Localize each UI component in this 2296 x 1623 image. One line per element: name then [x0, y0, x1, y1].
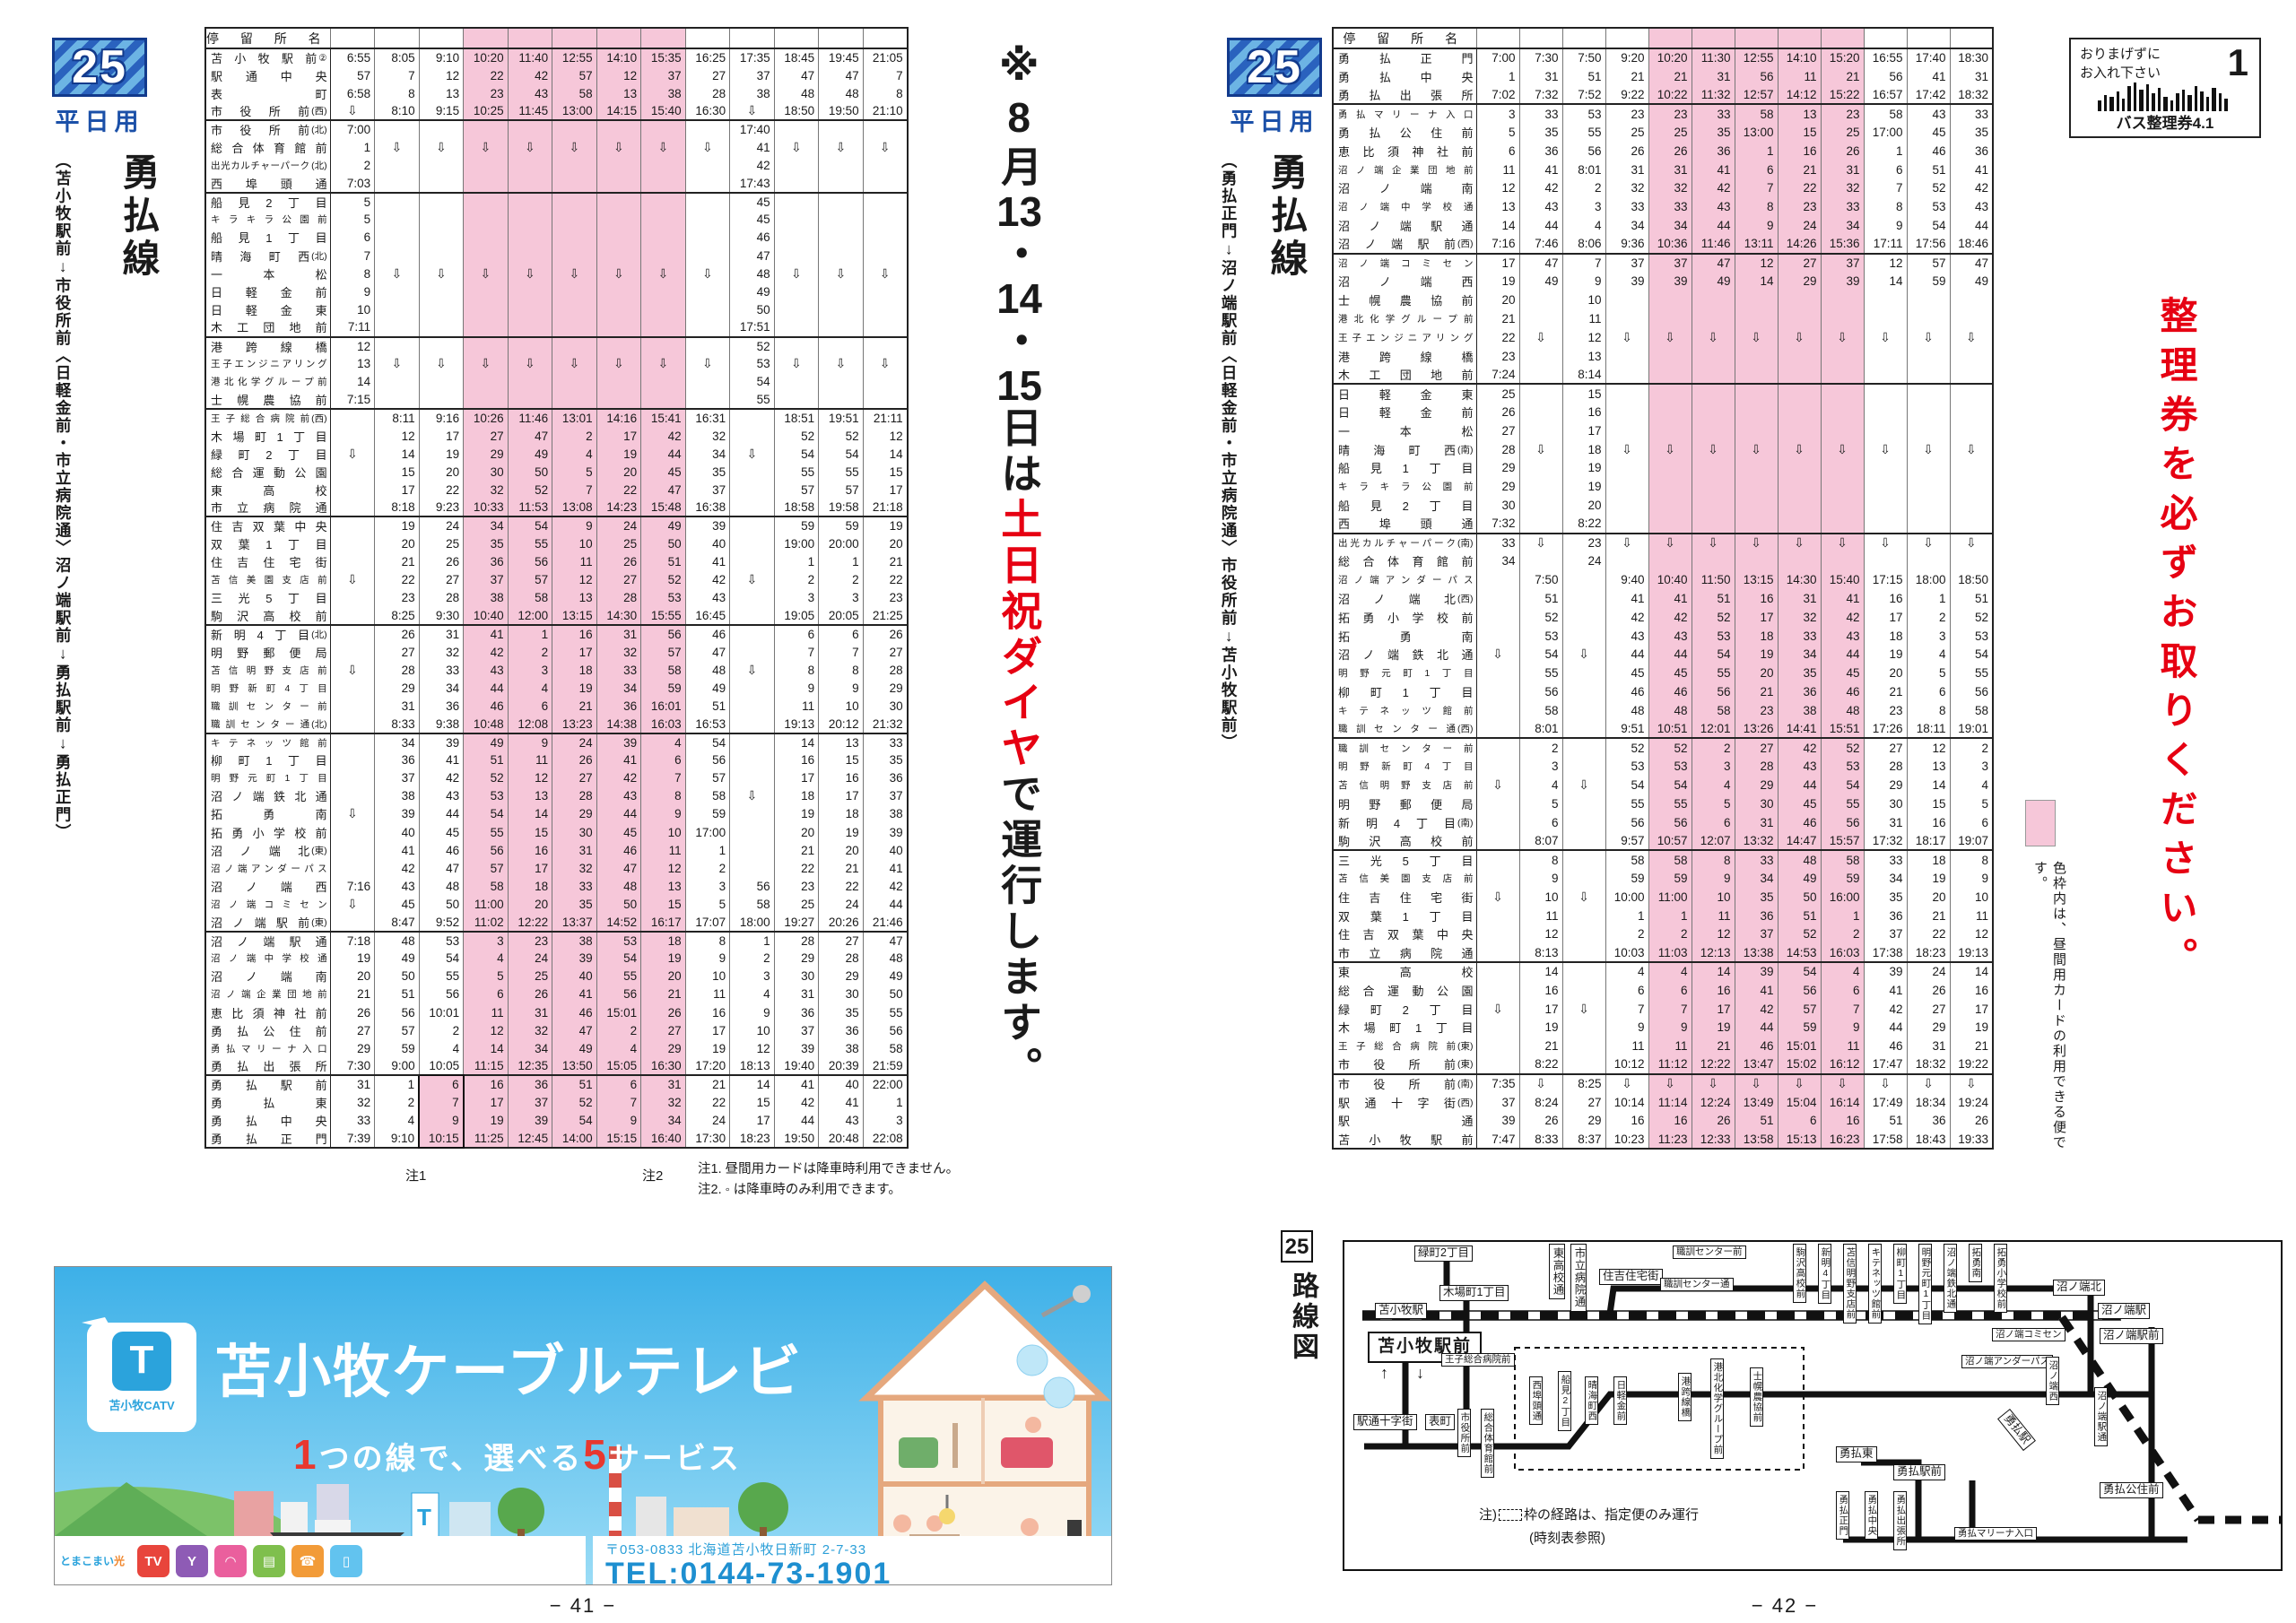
time-cell [730, 516, 775, 534]
time-cell [1476, 682, 1519, 701]
time-cell: 29 [1476, 459, 1519, 478]
time-cell: 8 [375, 84, 420, 102]
time-cell: 19 [1562, 459, 1605, 478]
time-cell: 15 [1778, 123, 1821, 142]
time-cell: ⇩ [1950, 440, 1993, 459]
time-cell: 52 [1648, 738, 1692, 757]
time-cell: 20 [1864, 664, 1907, 682]
time-cell: 36 [1519, 142, 1562, 161]
stop-row: 苫信明野支店前⇩283343318335848⇩8828 [205, 661, 908, 679]
time-cell: 37 [464, 571, 509, 589]
time-cell: 13:38 [1735, 943, 1778, 962]
pass-through-arrow-icon: ⇩ [1880, 442, 1891, 456]
time-cell [1950, 384, 1993, 403]
time-cell: 52 [774, 427, 819, 445]
time-cell: 54 [596, 950, 641, 968]
time-cell [552, 175, 597, 193]
time-cell: 26 [375, 625, 420, 643]
time-cell: 56 [1562, 142, 1605, 161]
time-cell: 54 [774, 445, 819, 463]
time-cell: 34 [685, 445, 730, 463]
time-cell: 50 [1778, 888, 1821, 907]
time-cell: 33 [1950, 104, 1993, 123]
time-cell: 42 [1605, 608, 1648, 627]
stop-row: 総合運動公園152030505204535555515 [205, 463, 908, 481]
time-cell: 55 [1562, 123, 1605, 142]
time-cell: 14 [375, 445, 420, 463]
time-cell: 32 [508, 1021, 552, 1039]
time-cell [685, 175, 730, 193]
time-cell: 55 [1605, 794, 1648, 813]
pass-through-arrow-icon: ⇩ [347, 806, 358, 820]
time-cell [1692, 459, 1735, 478]
time-cell [596, 337, 641, 355]
stop-name-cell: 総合体育館前 [205, 138, 330, 156]
time-cell: 36 [1864, 907, 1907, 925]
time-cell [419, 211, 464, 229]
time-cell: 6 [1692, 813, 1735, 832]
time-cell [1950, 347, 1993, 366]
time-cell: ⇩ [730, 787, 775, 805]
time-cell: 10 [1562, 291, 1605, 309]
time-cell [774, 282, 819, 300]
time-cell: 51 [1735, 1111, 1778, 1130]
time-cell [330, 679, 375, 697]
time-cell: 3 [464, 932, 509, 950]
time-cell: 9 [1648, 1018, 1692, 1037]
time-cell: ⇩ [464, 265, 509, 282]
time-cell: 54 [1519, 646, 1562, 664]
time-cell: 35 [1519, 123, 1562, 142]
time-cell: ⇩ [1476, 646, 1519, 664]
stop-name-cell: 沼ノ端北(東) [205, 841, 330, 859]
time-cell: 2 [1907, 608, 1950, 627]
stop-row: 沼ノ端駅通144443434449243495444 [1333, 216, 1993, 235]
time-cell: 15:02 [1778, 1055, 1821, 1074]
time-cell: 38 [552, 932, 597, 950]
time-cell [863, 337, 908, 355]
stop-row: 新明4丁目(南)65656631465631166 [1333, 813, 1993, 832]
time-cell: 54 [464, 805, 509, 823]
time-cell: 30 [819, 985, 864, 1003]
time-cell: 33 [330, 1112, 375, 1130]
time-cell: 12:00 [508, 607, 552, 625]
time-cell: 16 [552, 625, 597, 643]
dashed-frame-sample [1499, 1509, 1522, 1521]
time-cell [774, 300, 819, 318]
map-stop-label: 沼ノ端鉄北通 [1944, 1244, 1957, 1313]
map-stop-label: 明野元町1丁目 [1918, 1244, 1932, 1324]
time-cell [1519, 459, 1562, 478]
time-cell: 23 [863, 589, 908, 607]
time-cell: 16 [1950, 981, 1993, 1000]
time-cell: ⇩ [1821, 1074, 1864, 1093]
map-stop-label: 苫信明野支店前 [1843, 1244, 1857, 1324]
pass-through-arrow-icon: ⇩ [347, 897, 358, 911]
time-cell [1735, 291, 1778, 309]
time-cell [1692, 515, 1735, 534]
time-cell: 12 [596, 66, 641, 84]
time-cell: ⇩ [1907, 534, 1950, 552]
time-cell: ⇩ [730, 571, 775, 589]
stop-name-cell: 総合運動公園 [205, 463, 330, 481]
time-cell: 43 [1950, 197, 1993, 216]
stop-name-cell: 一本松 [1333, 421, 1476, 440]
time-cell: 40 [375, 823, 420, 841]
time-cell: 9 [1605, 1018, 1648, 1037]
time-cell [641, 300, 686, 318]
time-cell [375, 282, 420, 300]
time-cell: 25 [419, 535, 464, 553]
time-cell: 21:46 [863, 914, 908, 932]
pass-through-arrow-icon: ⇩ [658, 356, 669, 370]
time-cell: ⇩ [1864, 534, 1907, 552]
time-cell [1950, 309, 1993, 328]
map-note: 注)枠の経路は、指定便のみ運行 (時刻表参照) [1479, 1504, 1699, 1549]
time-cell: 21 [774, 841, 819, 859]
time-cell: 17 [774, 769, 819, 787]
time-cell: 48 [419, 877, 464, 895]
trip-column-header [375, 28, 420, 48]
stop-row: 沼ノ端駅前(西)7:167:468:069:3610:3611:4613:111… [1333, 235, 1993, 254]
time-cell: 50 [641, 535, 686, 553]
time-cell: 48 [1821, 701, 1864, 720]
pass-through-arrow-icon: ⇩ [1665, 330, 1675, 344]
time-cell: 26 [552, 751, 597, 769]
pass-through-arrow-icon: ⇩ [1880, 535, 1891, 550]
time-cell: ⇩ [863, 138, 908, 156]
time-cell: 42 [730, 157, 775, 175]
time-cell: 19:33 [1950, 1130, 1993, 1149]
time-cell: 27 [464, 427, 509, 445]
time-cell: 7:32 [1476, 515, 1519, 534]
stop-name-cell: 日軽金前 [1333, 403, 1476, 421]
stop-row: 勇払正門7:007:307:509:2010:2011:3012:5514:10… [1333, 48, 1993, 67]
time-cell: 44 [774, 1112, 819, 1130]
notice-segment: 14 [996, 278, 1042, 319]
time-cell: 41 [375, 841, 420, 859]
time-cell: 38 [464, 589, 509, 607]
time-cell: 21 [1476, 309, 1519, 328]
time-cell: 13:11 [1735, 235, 1778, 254]
time-cell: 14 [1692, 962, 1735, 981]
time-cell: 59 [1821, 869, 1864, 888]
time-cell [1821, 403, 1864, 421]
stop-name-cell: 勇払正門 [1333, 48, 1476, 67]
time-cell: 49 [685, 679, 730, 697]
time-cell: 4 [1605, 962, 1648, 981]
pass-through-arrow-icon: ⇩ [702, 266, 713, 281]
pass-through-arrow-icon: ⇩ [436, 266, 447, 281]
pass-through-arrow-icon: ⇩ [481, 266, 491, 281]
stop-row: 沼ノ端南205055525405520103302949 [205, 968, 908, 985]
time-cell: 4 [1648, 962, 1692, 981]
time-cell [685, 157, 730, 175]
time-cell: 33 [596, 661, 641, 679]
time-cell: 13:01 [552, 409, 597, 427]
time-cell: 25 [774, 895, 819, 913]
stop-row: 勇払中央13151212131561121564131 [1333, 67, 1993, 86]
time-cell [1519, 552, 1562, 571]
time-cell: ⇩ [1821, 440, 1864, 459]
time-cell [1476, 850, 1519, 869]
stop-name-cell: 明野元町1丁目 [205, 769, 330, 787]
time-cell [508, 282, 552, 300]
stop-row: 勇払中央3349193954934241744433 [205, 1112, 908, 1130]
pass-through-arrow-icon: ⇩ [836, 266, 847, 281]
time-cell: 8 [330, 265, 375, 282]
time-cell: 58 [464, 877, 509, 895]
stop-name-cell: 沼ノ端南 [1333, 179, 1476, 198]
time-cell: 21 [1692, 1037, 1735, 1055]
time-cell: 17 [1864, 608, 1907, 627]
map-stop-label: 沼ノ端コミセン [1992, 1328, 2066, 1341]
time-cell: 16 [508, 841, 552, 859]
map-stop-label: 沼ノ端アンダーパス [1961, 1355, 2053, 1368]
time-cell: 39 [863, 823, 908, 841]
time-cell: 4 [1907, 646, 1950, 664]
pass-through-arrow-icon: ⇩ [1837, 330, 1848, 344]
time-cell: 12 [464, 1021, 509, 1039]
time-cell: 14:10 [596, 48, 641, 66]
time-cell: ⇩ [730, 445, 775, 463]
stop-name-cell: 東高校 [205, 481, 330, 499]
time-cell: 8:14 [1562, 366, 1605, 385]
time-cell: 30 [464, 463, 509, 481]
time-cell: 8:37 [1562, 1130, 1605, 1149]
time-cell: 9:30 [419, 607, 464, 625]
time-cell [1648, 477, 1692, 496]
time-cell: 24 [1907, 962, 1950, 981]
map-stop-label: 駒沢高校前 [1793, 1244, 1806, 1303]
svg-text:T: T [417, 1504, 431, 1531]
time-cell: 46 [685, 625, 730, 643]
time-cell: 22 [1778, 179, 1821, 198]
time-cell: 25 [1476, 384, 1519, 403]
time-cell: 7:11 [330, 318, 375, 336]
time-cell: 38 [819, 1039, 864, 1057]
time-cell: 20 [819, 841, 864, 859]
time-cell: 10:48 [464, 715, 509, 733]
time-cell [596, 391, 641, 409]
time-cell: 29 [819, 968, 864, 985]
time-cell: 56 [641, 625, 686, 643]
time-cell: 7 [552, 481, 597, 499]
time-cell: 55 [774, 463, 819, 481]
stop-name-cell: 晴海町西(北) [205, 247, 330, 265]
time-cell [1476, 608, 1519, 627]
stop-name-cell: 西埠頭通 [1333, 515, 1476, 534]
stop-row: 勇払正門7:399:1010:1511:2512:4514:0015:1516:… [205, 1130, 908, 1148]
time-cell: 52 [1821, 738, 1864, 757]
time-cell: 49 [730, 282, 775, 300]
time-cell: 20 [774, 823, 819, 841]
time-cell [1476, 570, 1519, 589]
time-cell: ⇩ [1648, 534, 1692, 552]
time-cell [1605, 384, 1648, 403]
direction-down-arrow: ↓ [1416, 1364, 1424, 1383]
time-cell: 10:15 [419, 1130, 464, 1148]
stop-name-cell: 王子エンジニアリング [205, 355, 330, 373]
time-cell [464, 373, 509, 391]
stop-row: 西埠頭通7:0317:43 [205, 175, 908, 193]
time-cell [1907, 552, 1950, 571]
time-cell: ⇩ [330, 661, 375, 679]
pass-through-arrow-icon: ⇩ [436, 140, 447, 154]
time-cell: 22 [819, 877, 864, 895]
time-cell: 22 [1907, 924, 1950, 943]
time-cell [1692, 477, 1735, 496]
time-cell: 10 [1692, 888, 1735, 907]
time-cell [730, 859, 775, 877]
time-cell: 19 [863, 516, 908, 534]
time-cell [419, 373, 464, 391]
pass-through-arrow-icon: ⇩ [1492, 1002, 1503, 1016]
time-cell [375, 175, 420, 193]
pass-through-arrow-icon: ⇩ [1492, 777, 1503, 792]
time-cell: 11 [552, 553, 597, 571]
time-cell [330, 715, 375, 733]
time-cell [641, 318, 686, 336]
time-cell: 46 [1864, 1037, 1907, 1055]
pass-through-arrow-icon: ⇩ [1923, 330, 1934, 344]
time-cell: ⇩ [1476, 888, 1519, 907]
time-cell: ⇩ [375, 138, 420, 156]
time-cell [464, 175, 509, 193]
map-stop-label: 新明4丁目 [1818, 1244, 1831, 1304]
stop-name-cell: 日軽金東 [205, 300, 330, 318]
time-cell: 8 [1519, 850, 1562, 869]
time-cell: 23 [774, 877, 819, 895]
time-cell [774, 318, 819, 336]
time-cell [552, 211, 597, 229]
stop-name-cell: 沼ノ端中学校通 [205, 950, 330, 968]
trip-column-header [1907, 28, 1950, 48]
time-cell: 20 [1907, 888, 1950, 907]
time-cell [1907, 496, 1950, 515]
time-cell [1907, 477, 1950, 496]
stop-row: 船見1丁目646 [205, 229, 908, 247]
time-cell [1476, 757, 1519, 776]
time-cell [1735, 496, 1778, 515]
stop-row: 住吉住宅街⇩10⇩10:0011:0010355016:00352010 [1333, 888, 1993, 907]
time-cell: 41 [419, 751, 464, 769]
time-cell: 42 [464, 643, 509, 661]
time-cell: 28 [863, 661, 908, 679]
time-cell: 17:30 [685, 1130, 730, 1148]
time-cell [1562, 701, 1605, 720]
time-cell: 38 [1778, 701, 1821, 720]
time-cell: 10:23 [1605, 1130, 1648, 1149]
time-cell [1821, 384, 1864, 403]
time-cell: 9 [1950, 869, 1993, 888]
time-cell: 2 [730, 950, 775, 968]
time-cell [464, 120, 509, 138]
time-cell [819, 318, 864, 336]
time-cell: 12 [1476, 179, 1519, 198]
map-stop-label: 職訓センター前 [1673, 1245, 1746, 1259]
time-cell: ⇩ [330, 895, 375, 913]
stop-name-cell: 日軽金前 [205, 282, 330, 300]
time-cell: 13:26 [1735, 720, 1778, 739]
time-cell: 15 [730, 1093, 775, 1111]
time-cell: 15:57 [1821, 831, 1864, 850]
time-cell: 25 [596, 535, 641, 553]
time-cell [1476, 981, 1519, 1000]
ticket-label: バス整理券4.1 [2071, 110, 2259, 133]
time-cell: 26 [1519, 1111, 1562, 1130]
time-cell: 23 [1562, 534, 1605, 552]
time-cell: 4 [1950, 776, 1993, 794]
time-cell: ⇩ [1735, 534, 1778, 552]
time-cell: 15:22 [1821, 86, 1864, 105]
pass-through-arrow-icon: ⇩ [1923, 442, 1934, 456]
time-cell: 18:51 [774, 409, 819, 427]
time-cell [1735, 384, 1778, 403]
time-cell: 18:00 [1907, 570, 1950, 589]
time-cell [1605, 515, 1648, 534]
time-cell: 54 [1692, 646, 1735, 664]
time-cell [1950, 366, 1993, 385]
stop-row: 船見2丁目545 [205, 193, 908, 211]
time-cell: 13:49 [1735, 1093, 1778, 1112]
holiday-schedule-notice: ※8月13・14・15日は土日祝ダイヤで運行します。 [994, 41, 1043, 1198]
pass-through-arrow-icon: ⇩ [1535, 535, 1546, 550]
time-cell: 11:00 [464, 895, 509, 913]
time-cell [596, 193, 641, 211]
time-cell: 16 [1519, 981, 1562, 1000]
time-cell: 22 [685, 1093, 730, 1111]
stop-row: 一本松2717 [1333, 421, 1993, 440]
time-cell [596, 318, 641, 336]
time-cell: 15 [508, 823, 552, 841]
stop-row: 市立病院通8:1310:0311:0312:1313:3814:5316:031… [1333, 943, 1993, 962]
time-cell: 5 [1950, 794, 1993, 813]
time-cell [1562, 962, 1605, 981]
time-cell: 15:04 [1778, 1093, 1821, 1112]
time-cell: 39 [1735, 962, 1778, 981]
map-stop-label: 沼ノ端駅 [2098, 1303, 2150, 1319]
time-cell: 45 [419, 823, 464, 841]
time-cell: 15:13 [1778, 1130, 1821, 1149]
time-cell [552, 300, 597, 318]
stop-row: 明野元町1丁目5545455520354520555 [1333, 664, 1993, 682]
time-cell: 48 [1648, 701, 1692, 720]
time-cell [1562, 813, 1605, 832]
time-cell [685, 229, 730, 247]
time-cell: 18 [552, 661, 597, 679]
time-cell [1950, 515, 1993, 534]
time-cell [1864, 552, 1907, 571]
route-description-right: （勇払正門↓沼ノ端駅前〈日軽金前・市立病院通〉市役所前↓苫小牧駅前） [1220, 152, 1238, 1139]
time-cell: 19:27 [774, 914, 819, 932]
time-cell: 31 [774, 985, 819, 1003]
time-cell: 5 [1907, 664, 1950, 682]
time-cell: 12:35 [508, 1057, 552, 1075]
time-cell: 14:23 [596, 499, 641, 516]
time-cell: 51 [685, 697, 730, 715]
time-cell [730, 769, 775, 787]
time-cell [1562, 608, 1605, 627]
notice-segment: 日は [996, 406, 1042, 498]
time-cell: 21 [1907, 907, 1950, 925]
time-cell: 12 [1907, 738, 1950, 757]
time-cell [1562, 869, 1605, 888]
stop-name-cell: 王子総合病院前(西) [205, 409, 330, 427]
time-cell: 31 [1519, 67, 1562, 86]
trip-column-header [508, 28, 552, 48]
time-cell: ⇩ [819, 265, 864, 282]
